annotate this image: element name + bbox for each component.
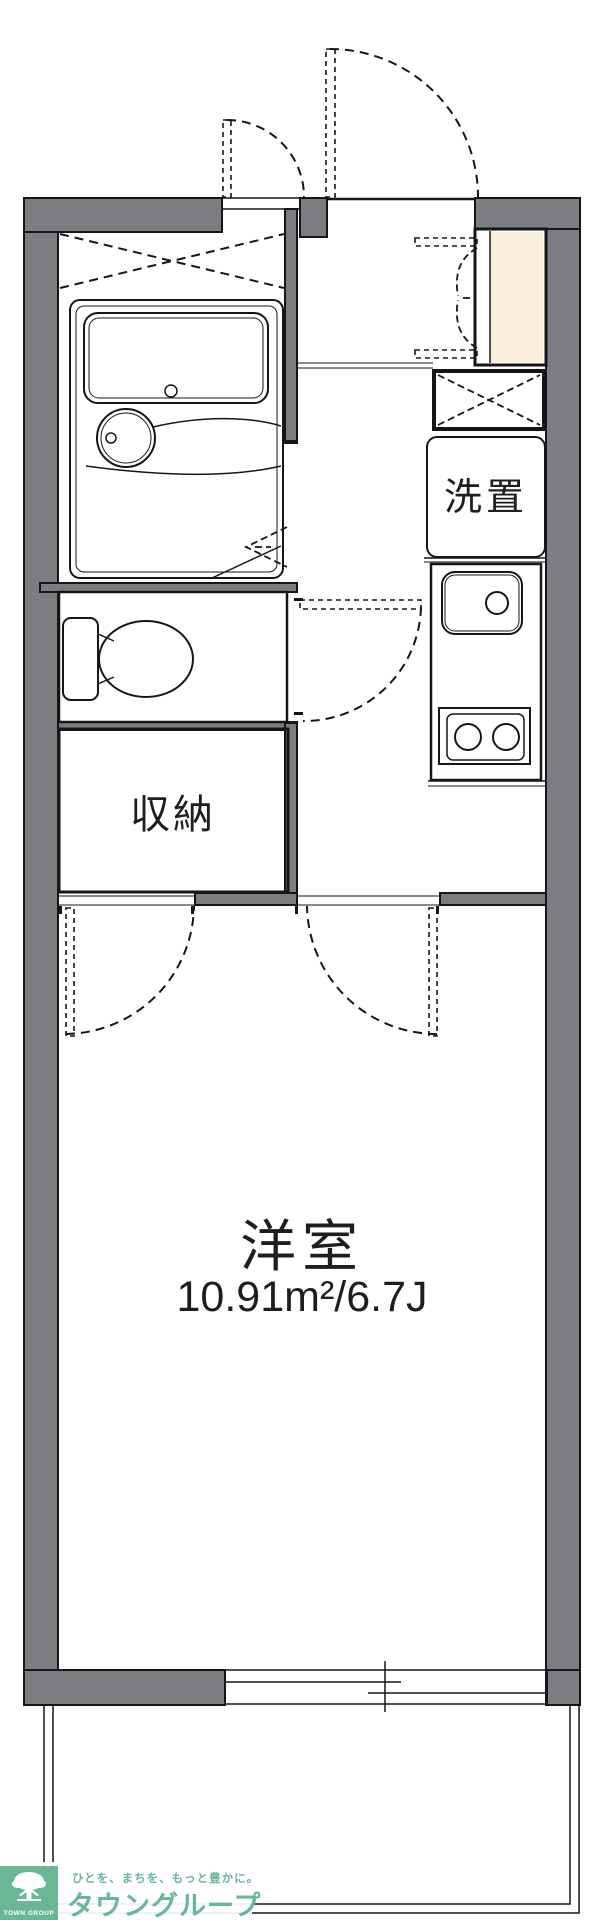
bath-deck-line2	[86, 466, 281, 474]
wall-stub-room-top	[195, 893, 297, 905]
closet-label: 収納	[130, 793, 216, 837]
outer-walls	[24, 198, 580, 1705]
western-room: 洋室 10.91m²/6.7J	[177, 1215, 428, 1321]
closet-door-swing	[66, 906, 194, 1034]
room-door-swing	[307, 906, 437, 1034]
folding-door-top	[415, 238, 477, 246]
bath-deck-line	[153, 419, 281, 427]
vent-box	[434, 371, 544, 429]
entry-door-swing	[330, 49, 478, 197]
closet-door-leaf	[66, 908, 74, 1036]
kitchen: 洗置	[424, 437, 546, 786]
faucet-icon	[486, 592, 508, 614]
western-room-doors	[66, 906, 437, 1036]
bathtub-drain-icon	[165, 385, 177, 397]
wall-top-right	[475, 198, 580, 229]
wall-bottom-left	[24, 1670, 225, 1705]
bath-unit-panel	[70, 300, 283, 578]
wall-left	[24, 198, 58, 1705]
stove-unit	[439, 708, 530, 764]
wall-cap	[285, 440, 297, 444]
sliding-window	[225, 1670, 547, 1704]
top-window	[222, 198, 300, 209]
bath-deck-line3	[212, 546, 281, 578]
tree-icon	[9, 1871, 49, 1903]
wall-right	[546, 198, 580, 1705]
toilet-door-leaf	[300, 600, 421, 609]
bathtub-inner-line	[89, 318, 263, 398]
burner-right-icon	[493, 724, 519, 750]
burner-left-icon	[455, 724, 481, 750]
wall-bath-hall	[285, 209, 297, 443]
wall-bath-toilet	[40, 583, 297, 592]
toilet-tank	[63, 618, 98, 700]
stove-frame	[447, 714, 524, 760]
toilet-door-jamb	[294, 712, 303, 715]
folding-door-bottom	[415, 350, 477, 358]
town-group-mark-text: TOWN GROUP	[4, 1910, 54, 1917]
wall-top-left	[24, 198, 222, 232]
bathroom	[60, 234, 287, 578]
closet-room: 収納	[59, 729, 288, 892]
toilet-room	[59, 592, 421, 722]
town-group-mark: TOWN GROUP	[0, 1866, 58, 1920]
room-door-leaf	[429, 908, 437, 1036]
storage-door-swing	[227, 120, 304, 197]
floor-plan-page: 収納 洗置 洋室 10.91m²/6.7J	[0, 0, 604, 1920]
laundry-label: 洗置	[444, 477, 528, 519]
wall-bottom-right	[547, 1670, 580, 1705]
entry-pillar	[300, 198, 327, 237]
western-room-area-label: 10.91m²/6.7J	[177, 1273, 428, 1321]
toilet-joint-lines	[98, 634, 114, 684]
door-jamb-tick	[59, 906, 62, 914]
washbasin-faucet-icon	[106, 433, 116, 443]
shoe-cabinet	[415, 229, 546, 365]
floor-plan-drawing: 収納 洗置 洋室 10.91m²/6.7J	[0, 0, 604, 1920]
toilet-bowl	[99, 621, 193, 697]
shoe-cabinet-face	[491, 232, 543, 362]
bathtub	[84, 313, 268, 403]
entry-door-leaf	[326, 49, 335, 197]
storage-door-leaf	[223, 120, 231, 197]
western-room-label: 洋室	[240, 1215, 364, 1278]
kitchen-sink	[442, 572, 522, 634]
entrance	[222, 49, 478, 368]
toilet-room-floor	[59, 592, 287, 722]
door-jamb-tick	[295, 906, 298, 914]
wall-room-top-right	[440, 893, 546, 905]
brand-name: タウングループ	[67, 1884, 261, 1920]
toilet-door-swing	[303, 607, 421, 721]
washbasin-inner-line	[101, 413, 151, 463]
